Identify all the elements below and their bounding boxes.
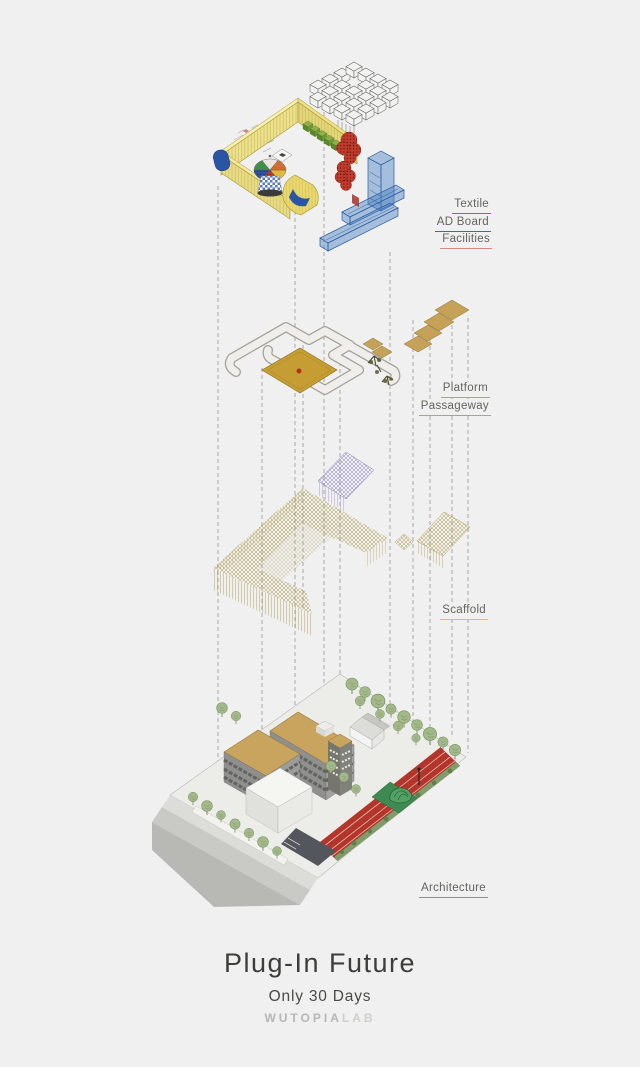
- annotation-ad-board: AD Board: [435, 216, 491, 232]
- annotation-architecture: Architecture: [419, 882, 488, 898]
- stepped-platforms: [363, 300, 469, 358]
- annotation-scaffold: Scaffold: [440, 604, 488, 620]
- scaffold-right-slab: [417, 512, 470, 568]
- exploded-axon-diagram: [0, 0, 640, 1067]
- annotation-platform: Platform: [441, 382, 490, 398]
- annotation-textile: Textile: [452, 198, 491, 214]
- adboard-structure: [320, 151, 404, 251]
- logo-primary: WUTOPIA: [264, 1011, 341, 1025]
- facilities-layer-illustration: [212, 62, 404, 251]
- poster-title: Plug-In Future: [0, 948, 640, 979]
- scaffold-small-cube: [395, 534, 413, 550]
- annotation-passageway: Passageway: [419, 400, 491, 416]
- architecture-layer-illustration: [152, 674, 466, 907]
- poster-page: Textile AD Board Facilities Platform Pas…: [0, 0, 640, 1067]
- poster-subtitle: Only 30 Days: [0, 988, 640, 1006]
- wutopia-lab-logo: WUTOPIALAB: [0, 1011, 640, 1025]
- scaffold-layer-illustration: [213, 452, 470, 636]
- platform-layer-illustration: [230, 300, 469, 393]
- annotation-facilities: Facilities: [440, 233, 492, 249]
- logo-secondary: LAB: [342, 1011, 376, 1025]
- scaffold-main: [213, 488, 388, 636]
